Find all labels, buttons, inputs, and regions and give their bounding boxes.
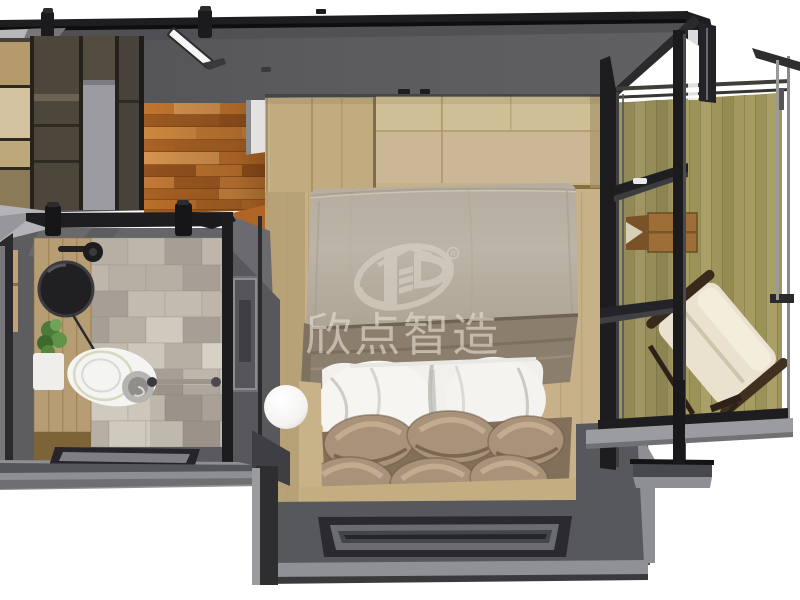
svg-text:R: R: [450, 251, 455, 258]
